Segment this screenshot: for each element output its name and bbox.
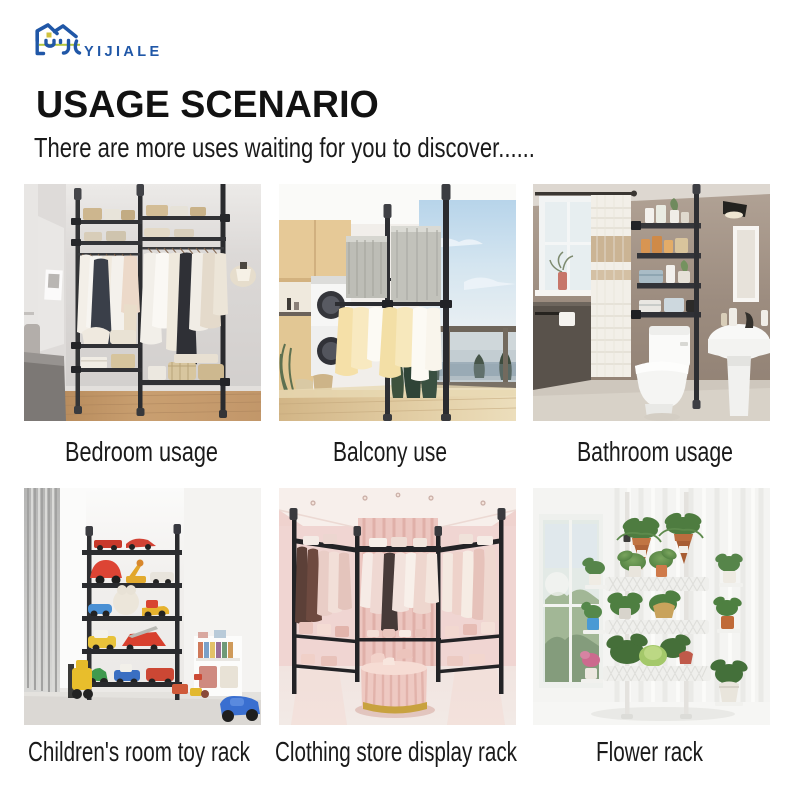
svg-text:YIJIALE: YIJIALE: [84, 44, 163, 60]
